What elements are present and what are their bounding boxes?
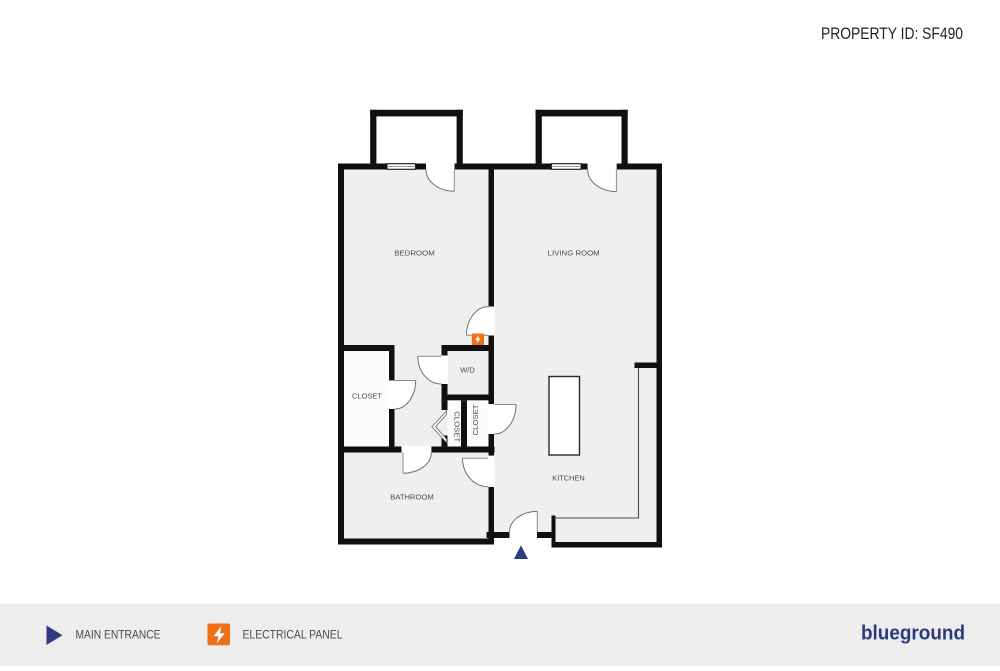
- svg-text:BEDROOM: BEDROOM: [394, 249, 435, 258]
- svg-text:PROPERTY ID: SF490: PROPERTY ID: SF490: [821, 25, 963, 43]
- svg-text:CLOSET: CLOSET: [471, 404, 480, 435]
- svg-text:blueground: blueground: [861, 623, 965, 645]
- svg-text:ELECTRICAL PANEL: ELECTRICAL PANEL: [243, 628, 343, 641]
- svg-text:KITCHEN: KITCHEN: [552, 474, 585, 483]
- svg-text:BATHROOM: BATHROOM: [390, 493, 434, 502]
- svg-text:CLOSET: CLOSET: [352, 392, 382, 401]
- svg-text:W/D: W/D: [460, 366, 475, 375]
- svg-text:CLOSET: CLOSET: [452, 411, 461, 442]
- svg-text:MAIN ENTRANCE: MAIN ENTRANCE: [76, 628, 161, 641]
- svg-text:LIVING ROOM: LIVING ROOM: [548, 249, 600, 258]
